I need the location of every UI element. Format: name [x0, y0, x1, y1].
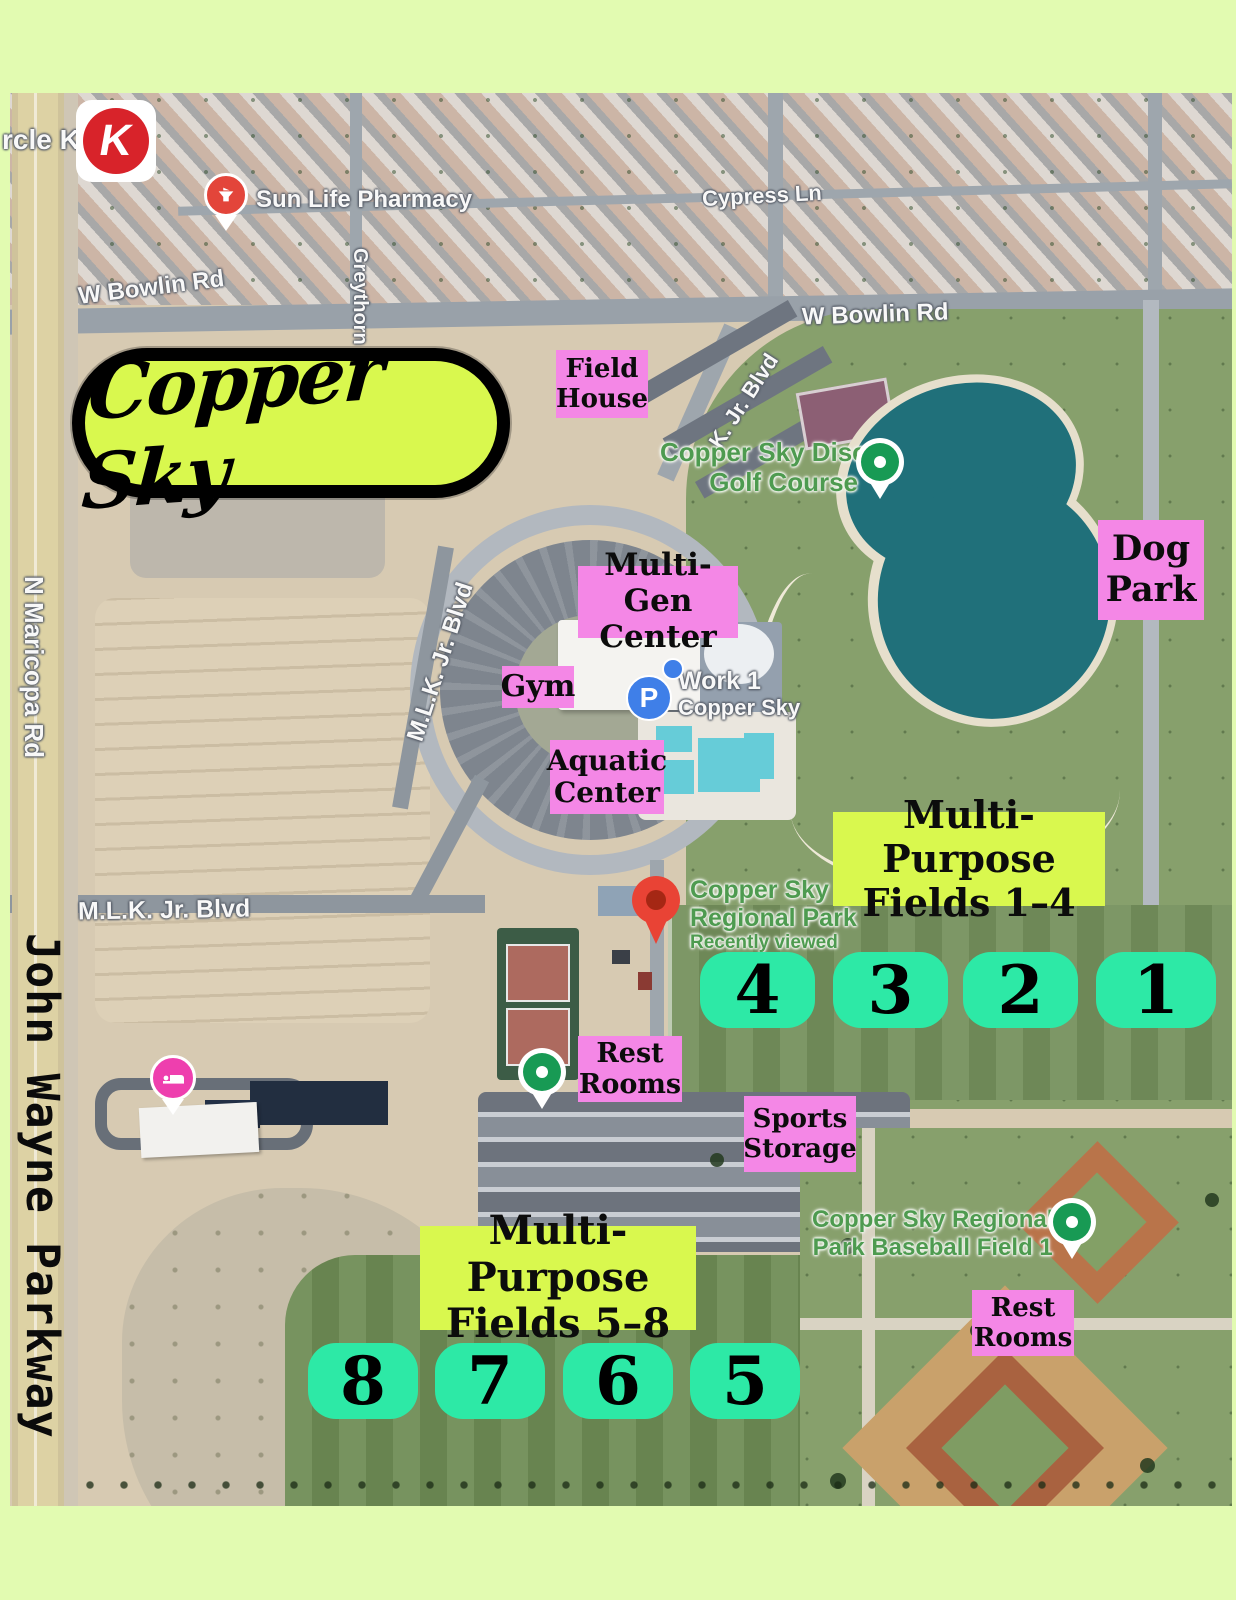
- tennis-court: [506, 944, 570, 1002]
- field-number-2: 2: [963, 952, 1078, 1028]
- john-wayne-parkway-text: John Wayne Parkway: [16, 933, 69, 1439]
- label-line: Storage: [743, 1134, 856, 1164]
- baseball-field-text: Copper Sky Regional Park Baseball Field …: [812, 1206, 1053, 1261]
- label-line: Rest: [596, 1038, 663, 1069]
- regional-park-line1: Copper Sky: [690, 876, 857, 904]
- label-line: Center: [599, 620, 716, 656]
- dog-park-label: Dog Park: [1098, 520, 1204, 620]
- work1-line2: Copper Sky: [678, 696, 800, 720]
- tile-number: 8: [340, 1342, 386, 1420]
- red-pin-icon: [632, 876, 680, 924]
- bowlin-rd-text-right: W Bowlin Rd: [802, 298, 950, 331]
- field-number-8: 8: [308, 1343, 418, 1419]
- label-line: Fields 5–8: [446, 1301, 670, 1347]
- tile-number: 2: [998, 951, 1044, 1029]
- aquatic-center-label: Aquatic Center: [550, 740, 664, 814]
- parking-letter: P: [640, 682, 659, 714]
- rest-rooms-label-2: Rest Rooms: [972, 1290, 1074, 1356]
- tile-number: 4: [735, 951, 781, 1029]
- hotel-pin: [150, 1055, 196, 1101]
- label-line: Rooms: [579, 1069, 681, 1100]
- label-line: Rooms: [974, 1323, 1072, 1353]
- rest-rooms-label-1: Rest Rooms: [578, 1036, 682, 1102]
- label-line: Park: [1106, 570, 1197, 611]
- label-line: House: [556, 384, 648, 414]
- field-number-4: 4: [700, 952, 815, 1028]
- label-line: Field: [566, 354, 639, 384]
- gym-label: Gym: [502, 666, 574, 708]
- label-line: Multi-Purpose: [420, 1208, 696, 1301]
- work1-text: Work 1 Copper Sky: [678, 668, 800, 720]
- work1-line1: Work 1: [678, 668, 800, 696]
- sports-storage-label: Sports Storage: [744, 1096, 856, 1172]
- fields-1-4-label: Multi-Purpose Fields 1–4: [833, 812, 1105, 906]
- tree-row: [10, 1471, 1232, 1506]
- multi-gen-center-label: Multi-Gen Center: [578, 566, 738, 638]
- maricopa-rd-text: N Maricopa Rd: [18, 576, 49, 758]
- label-line: Fields 1–4: [862, 881, 1075, 925]
- green-dot-icon: [856, 438, 904, 486]
- mlk-blvd-text-lower: M.L.K. Jr. Blvd: [78, 894, 251, 926]
- mortar-pestle-icon: [215, 184, 237, 206]
- parking-icon: P: [626, 675, 672, 721]
- circle-k-icon: K: [83, 108, 149, 174]
- tile-number: 6: [595, 1342, 641, 1420]
- circle-k-letter: K: [96, 116, 137, 166]
- pharmacy-pin: [204, 173, 248, 217]
- disc-golf-line1: Copper Sky Disc: [660, 438, 858, 468]
- label-line: Sports: [753, 1104, 848, 1134]
- baseball-line2: Park Baseball Field 1: [812, 1234, 1053, 1262]
- fields-5-8-label: Multi-Purpose Fields 5–8: [420, 1226, 696, 1330]
- small-structure: [612, 950, 630, 964]
- disc-golf-text: Copper Sky Disc Golf Course: [660, 438, 858, 498]
- green-dot-icon: [1048, 1198, 1096, 1246]
- restrooms-pin: [518, 1048, 566, 1096]
- tile-number: 5: [722, 1342, 768, 1420]
- label-line: Gym: [501, 670, 576, 705]
- regional-park-line2: Regional Park: [690, 904, 857, 932]
- copper-sky-park-map-flyer: rcle K Sun Life Pharmacy Cypress Ln W Bo…: [0, 0, 1236, 1600]
- dirt-field: [95, 598, 430, 1023]
- circle-k-logo: K: [76, 100, 156, 182]
- field-number-6: 6: [563, 1343, 673, 1419]
- baseball-pin: [1048, 1198, 1096, 1246]
- tree: [710, 1153, 724, 1167]
- baseball-line1: Copper Sky Regional: [812, 1206, 1053, 1234]
- label-line: Aquatic: [547, 745, 667, 777]
- field-number-7: 7: [435, 1343, 545, 1419]
- field-number-5: 5: [690, 1343, 800, 1419]
- small-structure: [638, 972, 652, 990]
- bed-icon: [161, 1069, 185, 1087]
- field-number-1: 1: [1096, 952, 1216, 1028]
- hotel-building: [139, 1102, 259, 1158]
- pool: [744, 733, 774, 779]
- tile-number: 1: [1133, 951, 1179, 1029]
- circle-k-map-text: rcle K: [2, 124, 80, 156]
- label-line: Rest: [991, 1293, 1056, 1323]
- field-house-label: Field House: [556, 350, 648, 418]
- label-line: Dog: [1112, 529, 1190, 570]
- label-line: Multi-Purpose: [833, 793, 1105, 881]
- hotel-roof-dark: [250, 1081, 388, 1125]
- regional-park-pin: [632, 876, 680, 924]
- copper-sky-logo-text: Copper Sky: [79, 319, 503, 527]
- street: [1148, 93, 1162, 307]
- copper-sky-logo: Copper Sky: [72, 348, 510, 498]
- disc-golf-line2: Golf Course: [660, 468, 858, 498]
- tile-number: 3: [868, 951, 914, 1029]
- pharmacy-map-text: Sun Life Pharmacy: [256, 186, 472, 214]
- tree: [1205, 1193, 1219, 1207]
- tile-number: 7: [467, 1342, 513, 1420]
- disc-golf-pin: [856, 438, 904, 486]
- parking-dot-icon: [662, 658, 684, 680]
- label-line: Center: [554, 777, 660, 809]
- field-number-3: 3: [833, 952, 948, 1028]
- regional-park-text: Copper Sky Regional Park Recently viewed: [690, 876, 857, 953]
- label-line: Multi-Gen: [578, 548, 738, 620]
- green-dot-icon: [518, 1048, 566, 1096]
